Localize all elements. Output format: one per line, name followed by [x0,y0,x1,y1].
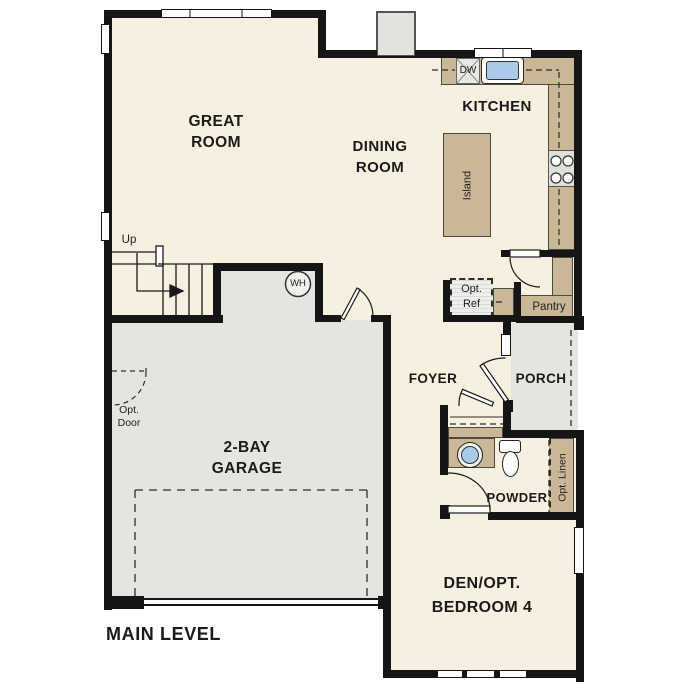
floor-plan: GREAT ROOM DINING ROOM KITCHEN 2-BAY GAR… [0,0,687,687]
up-label: Up [115,233,143,249]
garage-entry-door-arc [357,288,373,317]
closet-door-leaf [461,389,494,406]
den-label: DEN/OPT. BEDROOM 4 [402,572,562,620]
pantry-door-leaf [510,250,540,257]
pantry-door-arc [510,258,540,287]
wh-label: WH [284,278,312,291]
opt-linen-label: Opt. Linen [556,433,569,523]
garage-label: 2-BAY GARAGE [177,437,317,479]
dw-label: DW [456,64,480,78]
pantry-label: Pantry [519,300,579,316]
main-level-title: MAIN LEVEL [106,624,236,645]
stove-burners [551,156,573,183]
opt-door-label: Opt. Door [107,404,151,430]
porch-label: PORCH [505,368,577,389]
garage-entry-door-leaf [341,288,360,320]
dining-room-label: DINING ROOM [310,136,450,178]
front-door-arc [481,358,506,365]
garage-dashed-outline [135,490,367,597]
closet-door-arc [459,393,461,406]
powder-label: POWDER [479,487,555,508]
opt-door-dashed [112,368,146,405]
window-mullions [190,9,503,58]
great-room-label: GREAT ROOM [146,111,286,153]
plan-linework [0,0,687,687]
foyer-label: FOYER [395,368,471,389]
island-label: Island [461,146,474,226]
opt-ref-label: Opt. Ref [450,282,493,312]
stairs [112,246,213,316]
optional-dashed-walls [450,302,571,512]
kitchen-label: KITCHEN [427,96,567,117]
